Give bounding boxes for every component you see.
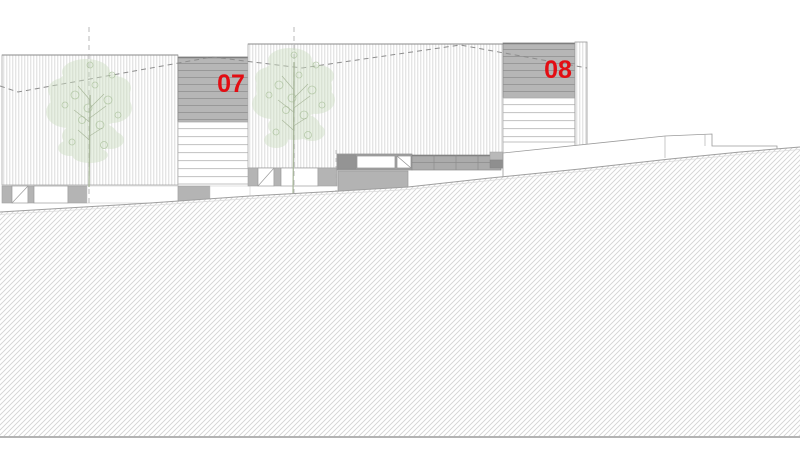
plinth-pier [318, 168, 337, 186]
plinth-window [34, 186, 68, 203]
unit-07-label: 07 [217, 70, 245, 98]
plinth-opening [87, 186, 178, 203]
band-window [357, 156, 395, 168]
architectural-elevation-canvas: 07 08 [0, 0, 800, 455]
building-b-base-band [337, 154, 412, 170]
plinth-pier [274, 168, 281, 186]
unit-08-label: 08 [544, 56, 572, 84]
railing-band-08 [503, 98, 575, 142]
plinth-window [281, 168, 318, 186]
corner-block-lower [490, 160, 503, 168]
plinth-pier [68, 186, 87, 203]
elevation-drawing-page: 07 08 [0, 0, 800, 455]
plinth-pier [28, 186, 34, 203]
building-b-corner-block [490, 152, 503, 168]
tower-side-column [575, 42, 587, 146]
corner-block-upper [490, 152, 503, 160]
railing-band-07 [178, 122, 250, 184]
plinth-pier [2, 186, 12, 203]
plinth-pier [248, 168, 258, 186]
dark-band-cell [338, 155, 356, 169]
louver-grid-panel [412, 155, 501, 170]
